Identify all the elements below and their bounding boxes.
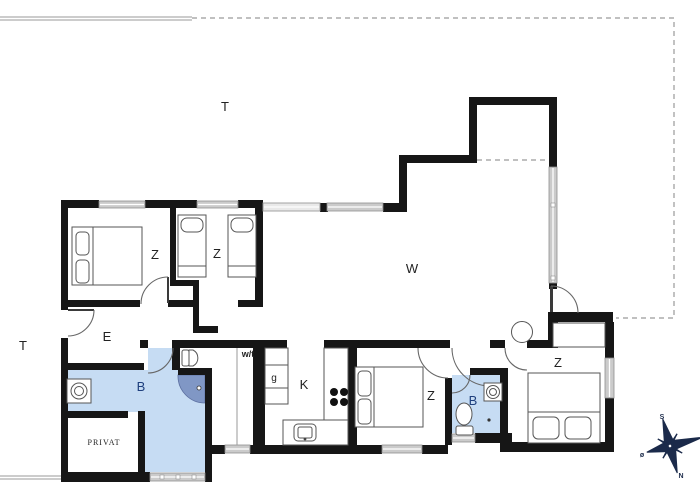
double-bed-icon [72, 227, 142, 285]
door-mullion [160, 475, 164, 479]
compass-label-south: S [660, 414, 665, 421]
terrace-door-leaf [550, 286, 553, 312]
double-bed-icon [528, 373, 600, 443]
room-label-bedroom1: Z [151, 247, 159, 262]
kitchen-sink-icon [294, 424, 316, 441]
floor-plan-page: T T W E Z Z Z Z B B K w/t g PRIVAT S N [0, 0, 700, 500]
toilet-icon [182, 350, 198, 366]
washing-machine-icon [67, 379, 91, 403]
double-bed-icon [355, 367, 423, 427]
room-label-private: PRIVAT [88, 438, 121, 447]
single-bed-icon [228, 215, 256, 277]
room-label-kitchen: K [300, 377, 309, 392]
single-bed-icon [178, 215, 206, 277]
window-mullion [551, 276, 555, 280]
room-label-utility: w/t [241, 349, 255, 359]
compass-label-east: ø [640, 452, 645, 459]
compass-rose: S N ø [640, 410, 700, 480]
entry-door-swing [68, 310, 94, 336]
window-mullion [551, 203, 555, 207]
shower-drain-icon [197, 386, 201, 390]
terrace-door-swing [551, 286, 578, 313]
door-mullion [192, 475, 196, 479]
bedroom4-door-swing [505, 348, 527, 370]
room-label-bedroom4: Z [554, 355, 562, 370]
door-handle-dot [487, 418, 490, 421]
door-mullion [176, 475, 180, 479]
room-label-terrace-left: T [19, 338, 27, 353]
closet-icon [553, 323, 605, 347]
room-label-entry: E [103, 329, 112, 344]
room-label-terrace-top: T [221, 99, 229, 114]
terrace-dashed-boundary [192, 18, 674, 318]
room-label-bathroom-main: B [137, 379, 146, 394]
room-label-bedroom3: Z [427, 388, 435, 403]
room-label-bathroom-ensuite: B [469, 393, 478, 408]
room-label-bedroom2: Z [213, 246, 221, 261]
room-label-wardrobe: g [271, 373, 277, 384]
round-table-icon [512, 322, 533, 343]
washbasin-icon [484, 383, 502, 401]
room-label-living: W [406, 261, 419, 276]
bedroom1-door-swing [141, 277, 168, 304]
compass-label-north: N [678, 473, 683, 480]
floor-plan: T T W E Z Z Z Z B B K w/t g PRIVAT S N [0, 0, 700, 500]
